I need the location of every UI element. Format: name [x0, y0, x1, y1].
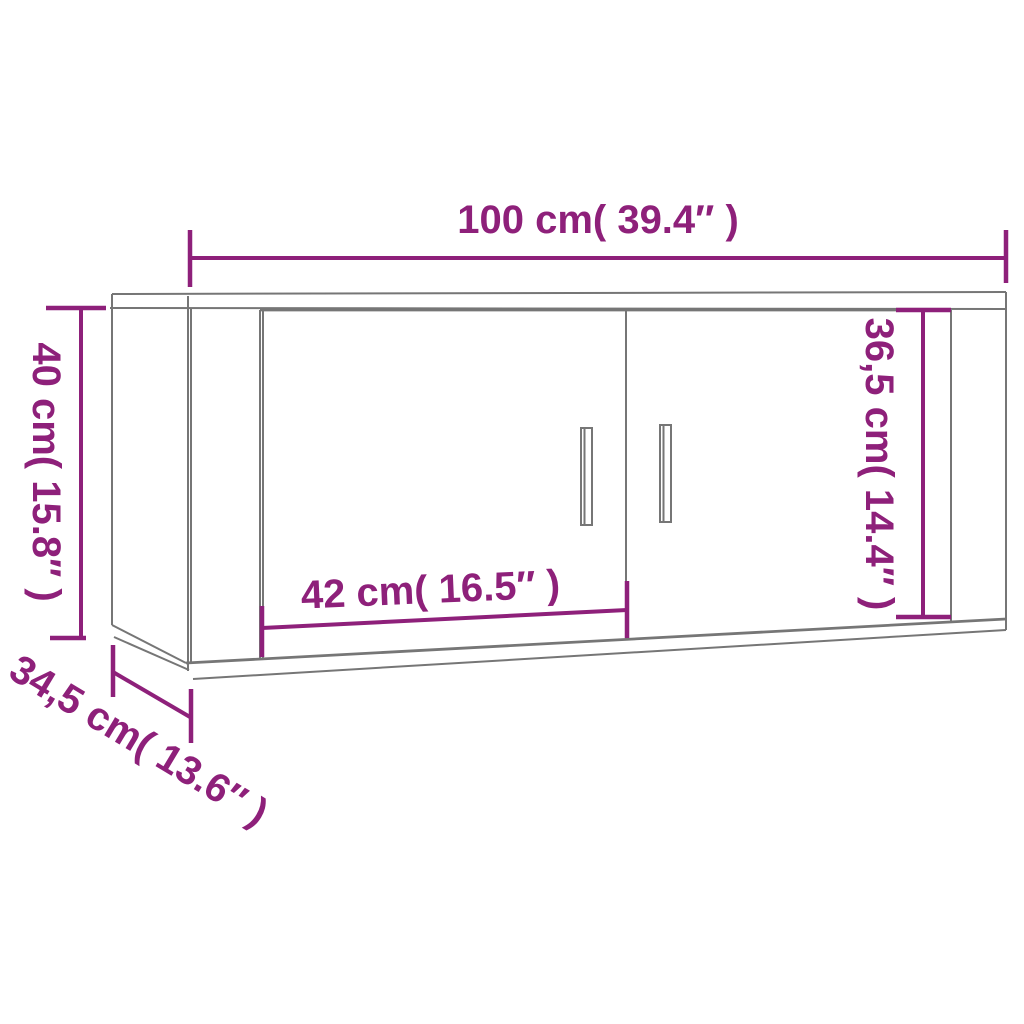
overall-height-label: 40 cm( 15.8″ ): [24, 342, 68, 601]
overall-width-label: 100 cm( 39.4″ ): [457, 198, 739, 242]
left-door-handle: [581, 428, 592, 525]
cabinet-dimension-drawing: 100 cm( 39.4″ ) 40 cm( 15.8″ ) 36,5 cm( …: [0, 0, 1024, 1024]
door-height-label: 36,5 cm( 14.4″ ): [857, 318, 901, 611]
left-handle-body: [581, 428, 592, 525]
right-handle-body: [660, 425, 671, 522]
product-dimension-diagram: 100 cm( 39.4″ ) 40 cm( 15.8″ ) 36,5 cm( …: [0, 0, 1024, 1024]
right-door-handle: [660, 425, 671, 522]
